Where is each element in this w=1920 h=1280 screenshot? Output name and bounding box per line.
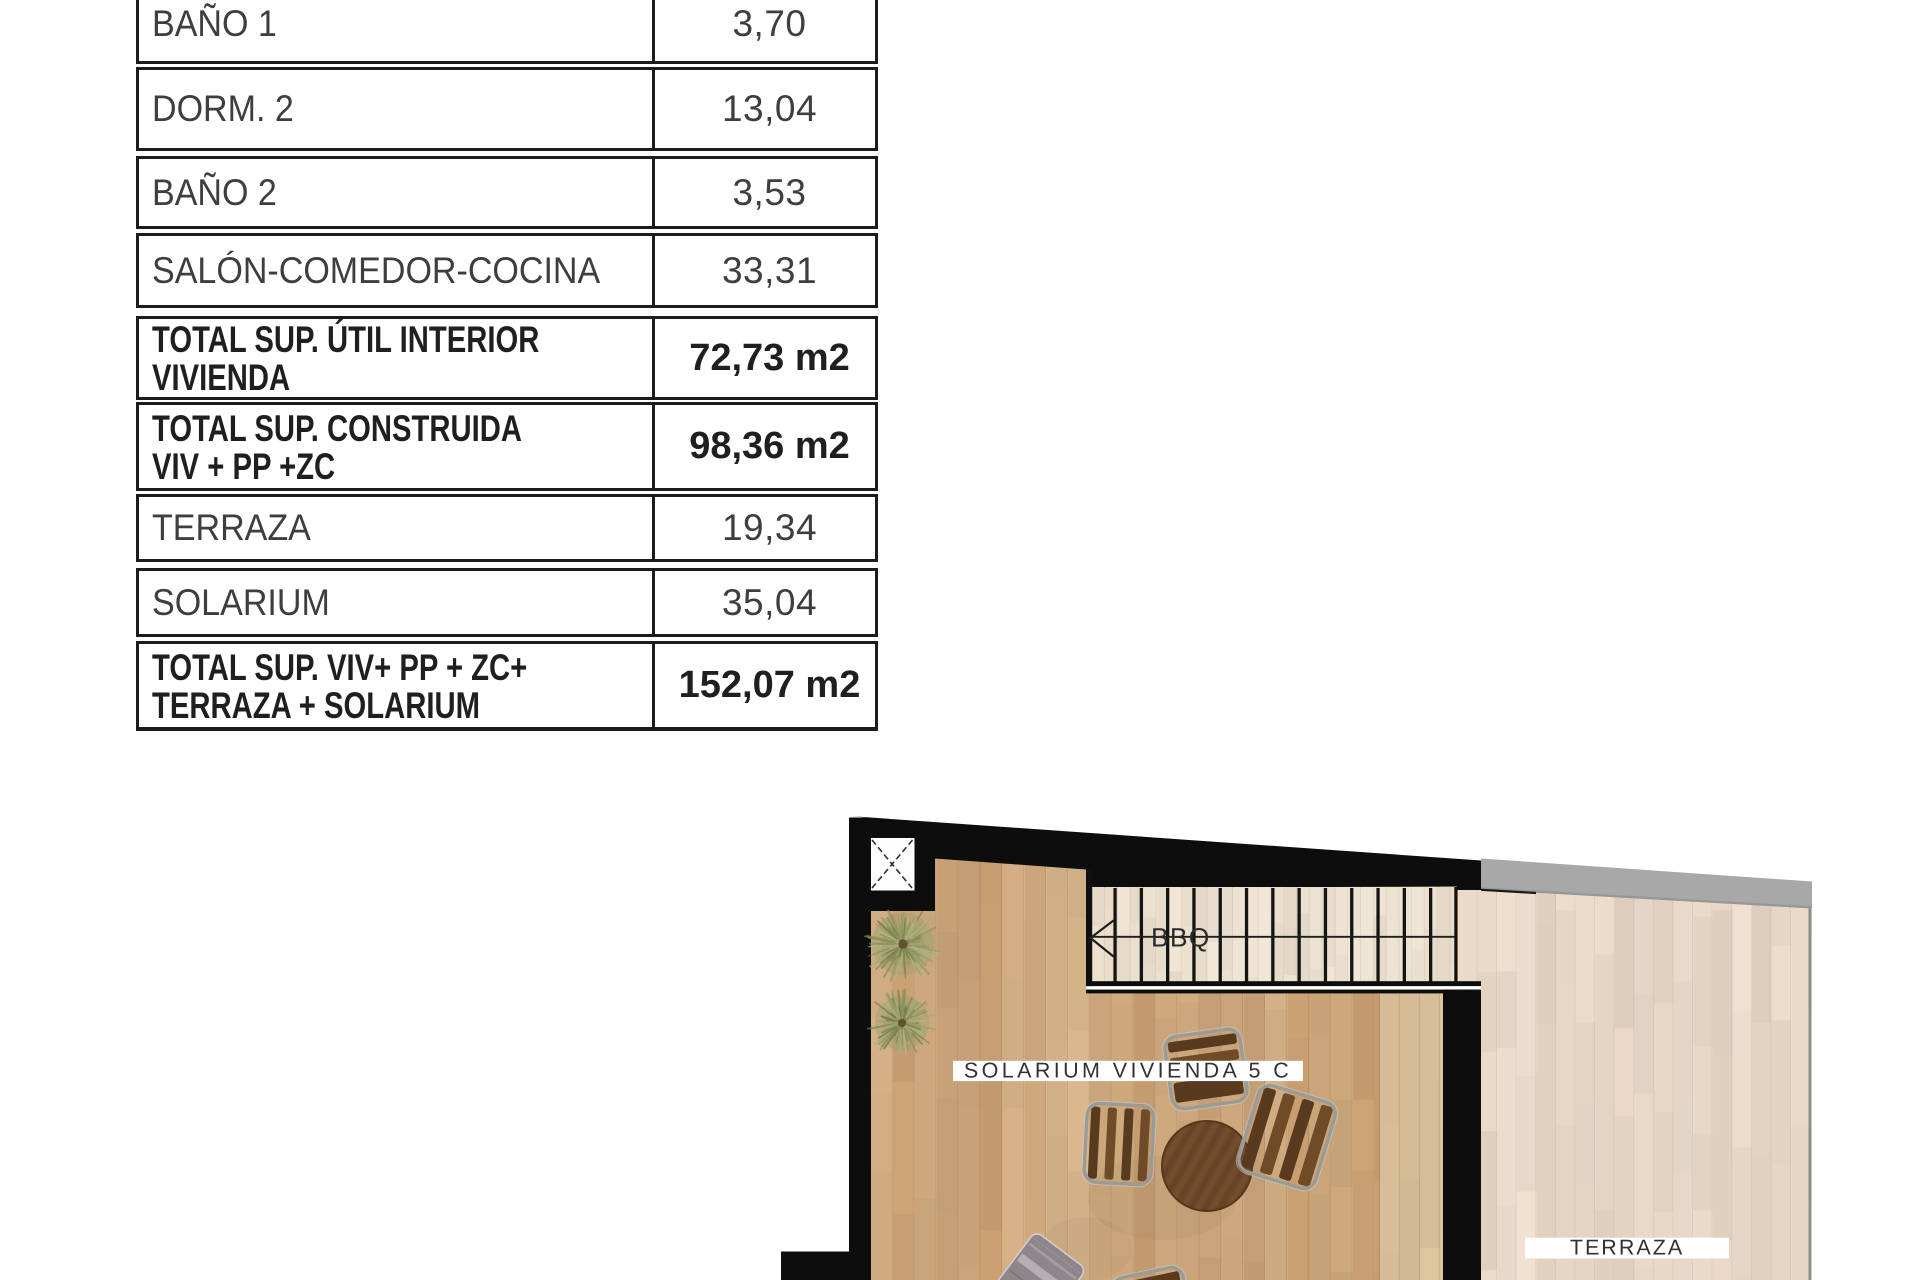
svg-text:SOLARIUM VIVIENDA 5 C: SOLARIUM VIVIENDA 5 C xyxy=(964,1058,1292,1082)
svg-text:BBQ: BBQ xyxy=(1151,923,1211,953)
svg-text:TERRAZA: TERRAZA xyxy=(1570,1236,1684,1260)
